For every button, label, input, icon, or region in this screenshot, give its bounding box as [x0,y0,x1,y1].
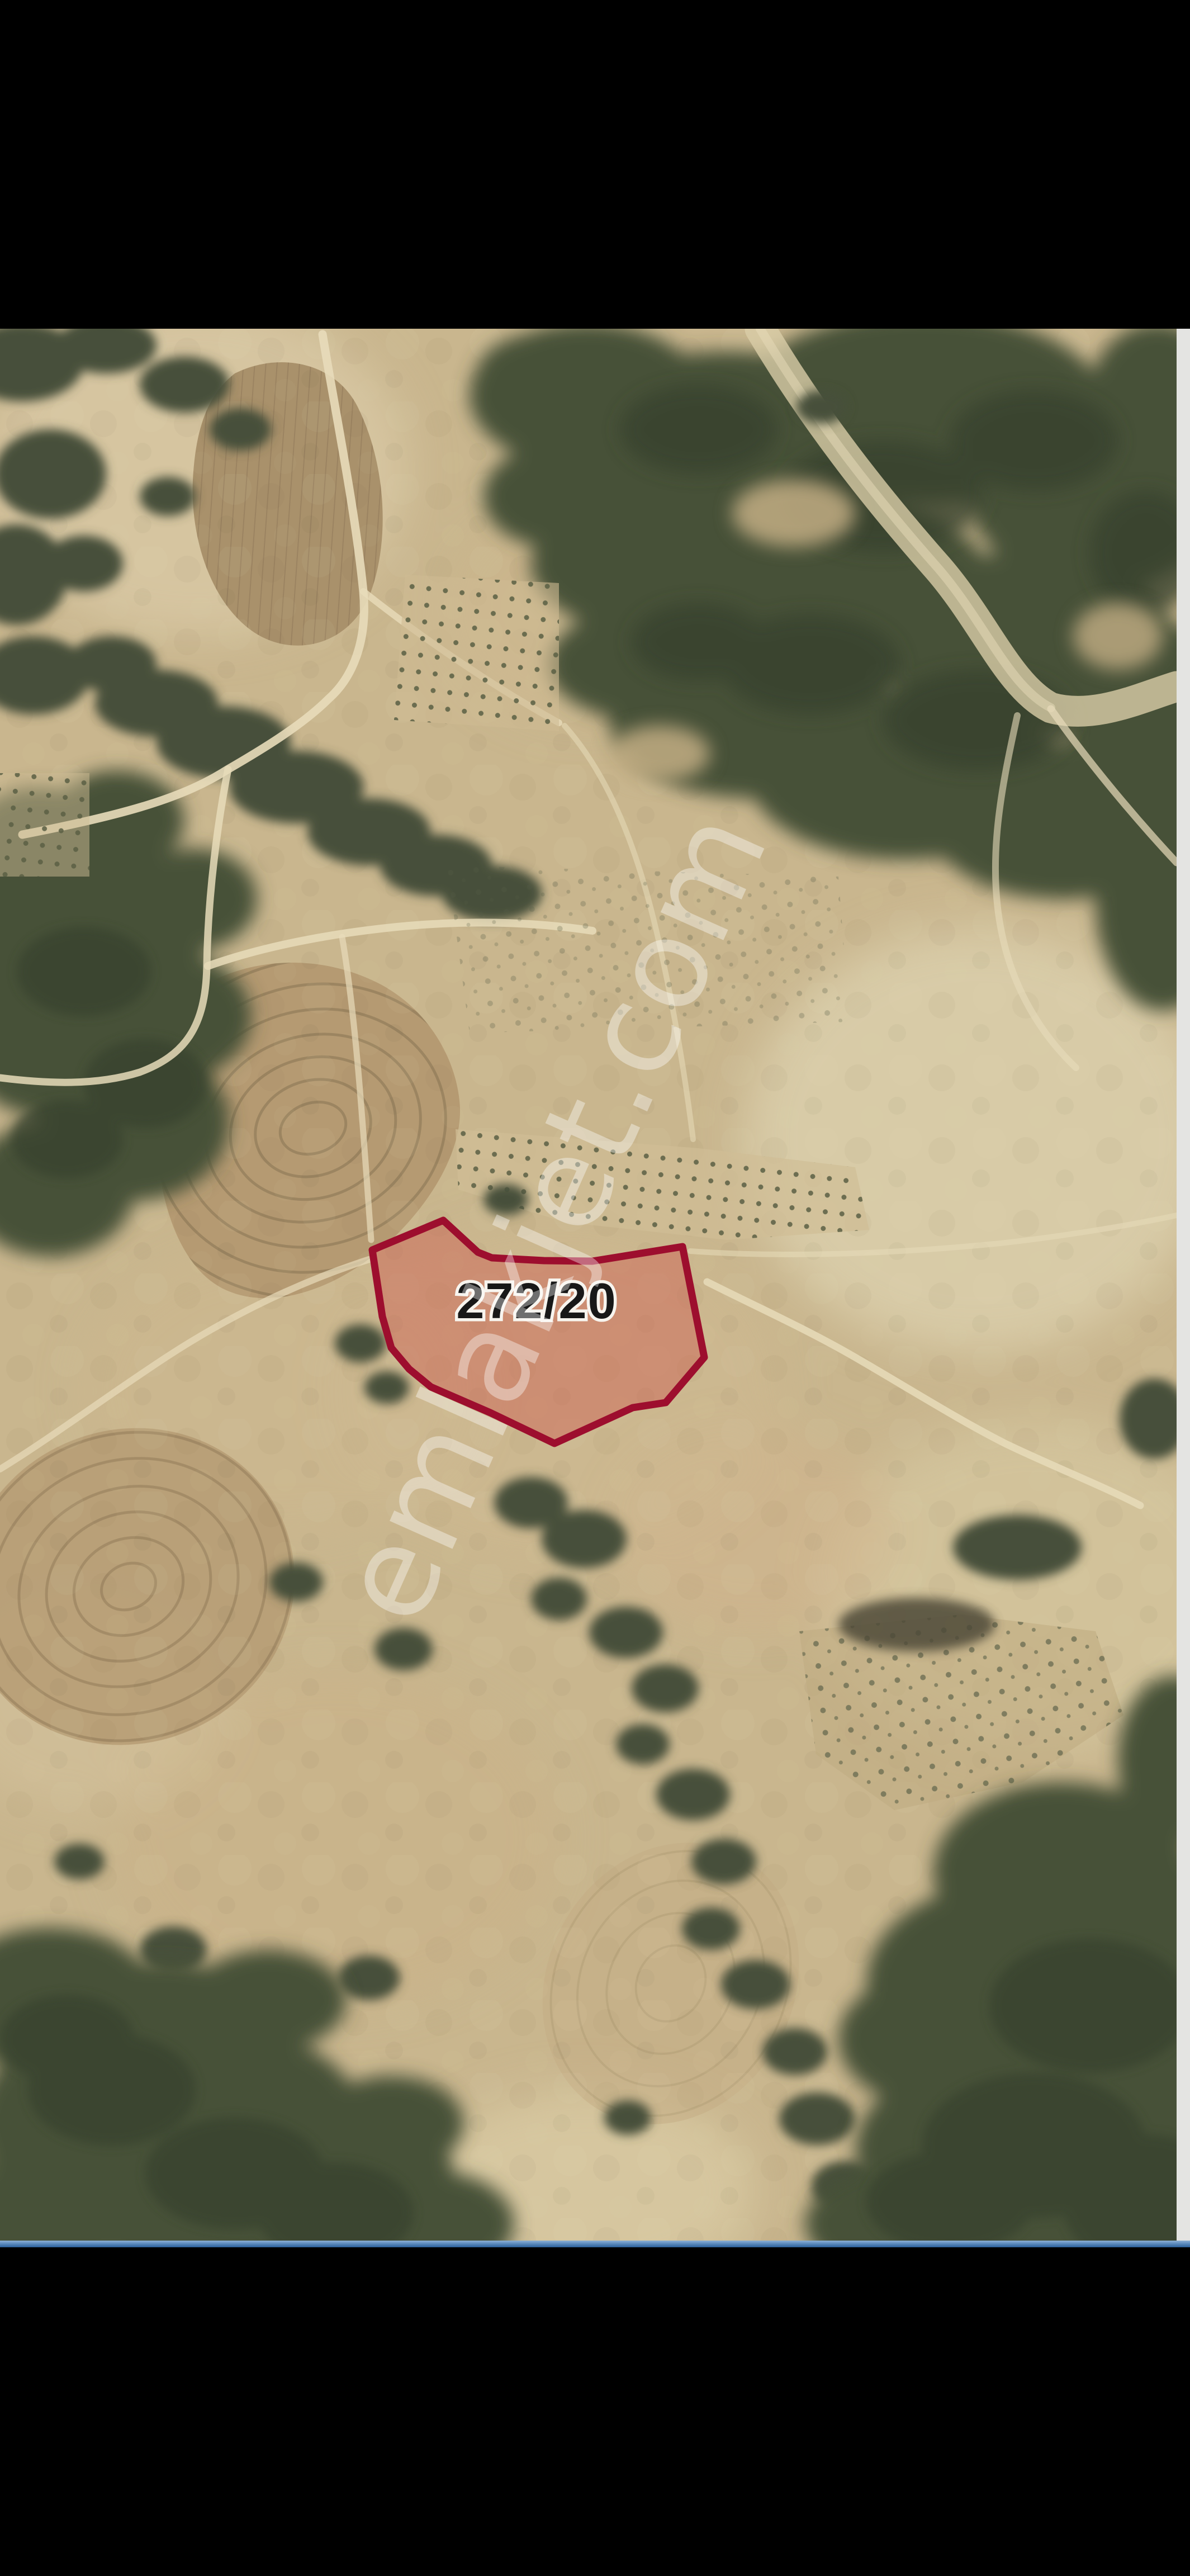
satellite-map[interactable]: 272/20 emlakjet.com [0,329,1190,2241]
map-divider-line [0,2241,1190,2247]
screenshot-stage: 272/20 emlakjet.com [0,0,1190,2576]
letterbox-bottom [0,2247,1190,2576]
map-edge-gutter [1177,329,1190,2241]
letterbox-top [0,0,1190,329]
terrain-svg: 272/20 emlakjet.com [0,329,1190,2241]
